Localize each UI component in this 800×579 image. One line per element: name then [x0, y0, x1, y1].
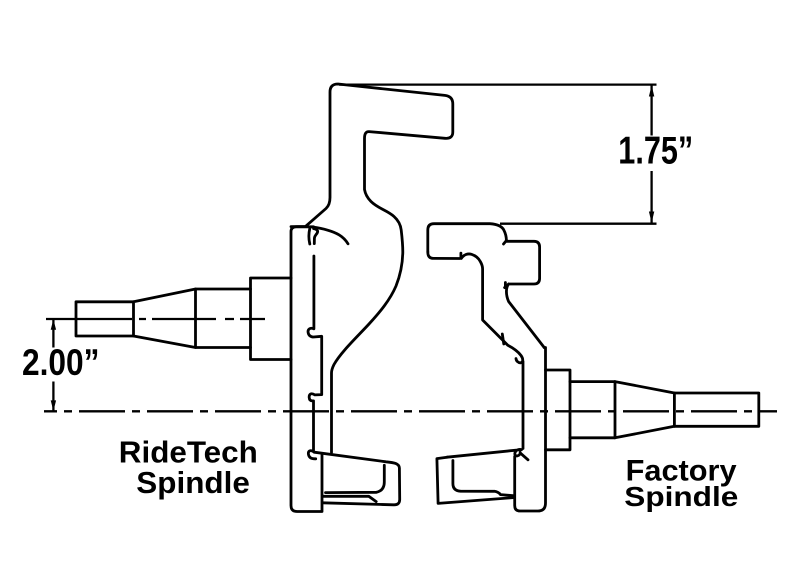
svg-text:2.00”: 2.00” [22, 342, 100, 383]
svg-text:Spindle: Spindle [624, 481, 738, 512]
svg-text:1.75”: 1.75” [618, 130, 693, 173]
svg-text:Spindle: Spindle [136, 465, 250, 500]
